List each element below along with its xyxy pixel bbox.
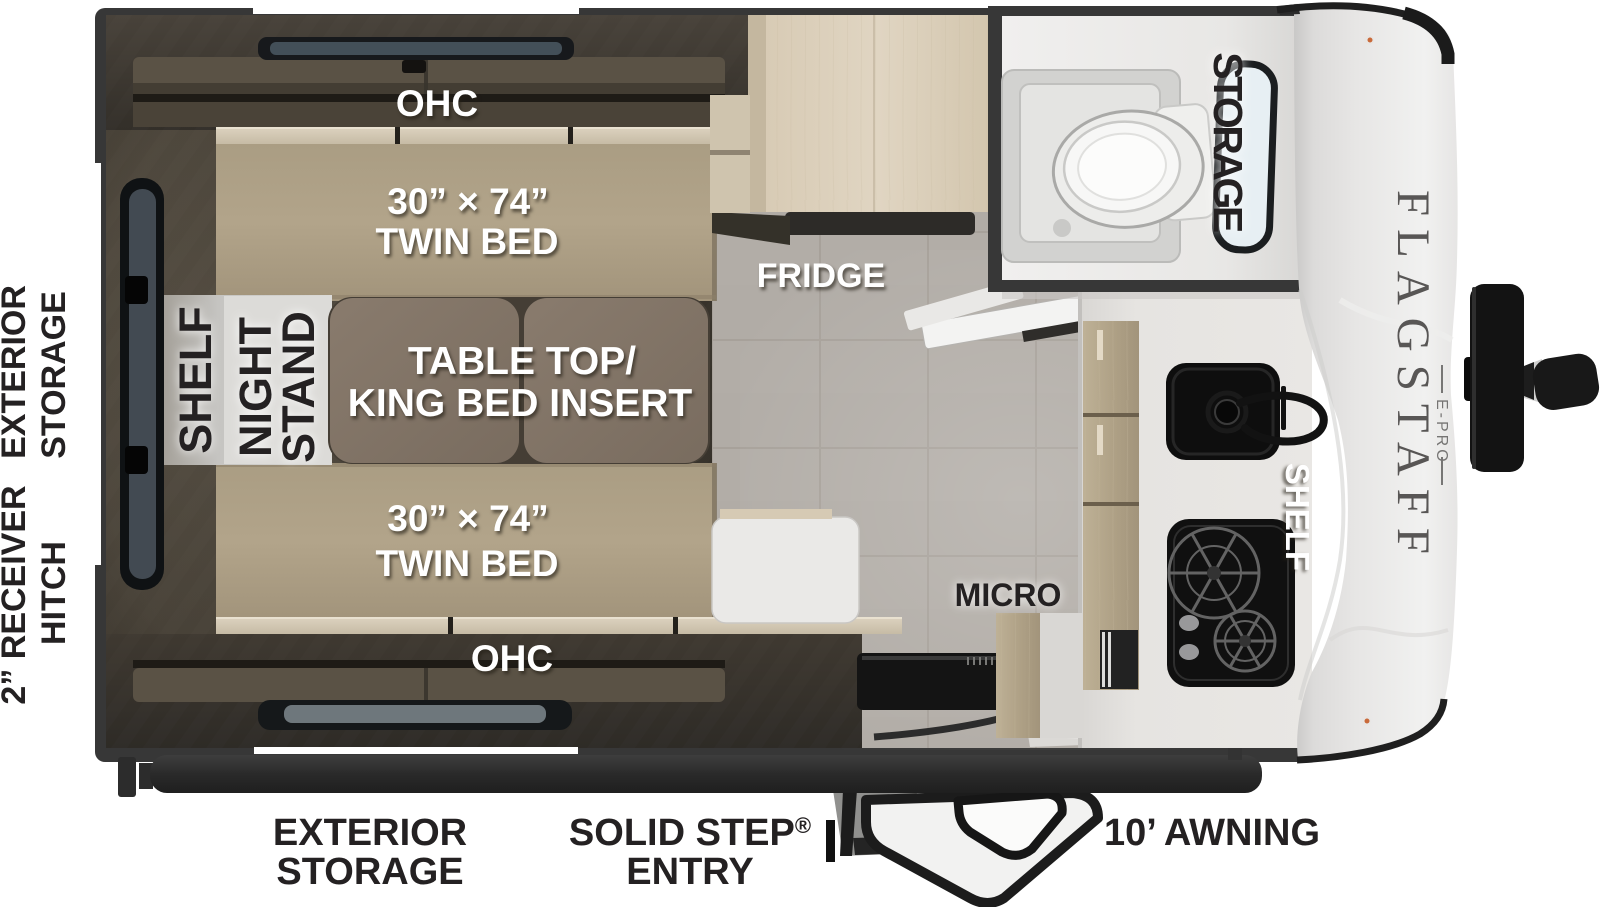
svg-text:30” × 74”: 30” × 74” bbox=[387, 181, 548, 222]
svg-text:STAND: STAND bbox=[273, 311, 324, 463]
svg-text:KING BED INSERT: KING BED INSERT bbox=[348, 382, 693, 425]
svg-text:SHELF: SHELF bbox=[1279, 463, 1316, 571]
svg-text:OHC: OHC bbox=[471, 638, 553, 679]
svg-text:STORAGE: STORAGE bbox=[276, 851, 463, 893]
svg-text:2” RECEIVER: 2” RECEIVER bbox=[0, 485, 33, 704]
svg-text:FRIDGE: FRIDGE bbox=[757, 257, 885, 295]
svg-text:EXTERIOR: EXTERIOR bbox=[273, 812, 467, 854]
svg-text:MICRO: MICRO bbox=[955, 577, 1062, 613]
svg-text:ENTRY: ENTRY bbox=[626, 851, 753, 893]
svg-text:EXTERIOR: EXTERIOR bbox=[0, 285, 33, 459]
svg-text:SOLID STEP®: SOLID STEP® bbox=[569, 812, 811, 854]
svg-text:TWIN BED: TWIN BED bbox=[376, 221, 559, 262]
svg-text:STORAGE: STORAGE bbox=[1205, 52, 1251, 232]
svg-text:OHC: OHC bbox=[396, 83, 478, 124]
svg-text:TWIN BED: TWIN BED bbox=[376, 543, 559, 584]
svg-text:STORAGE: STORAGE bbox=[35, 291, 73, 459]
svg-text:HITCH: HITCH bbox=[35, 541, 73, 645]
svg-text:TABLE TOP/: TABLE TOP/ bbox=[408, 340, 636, 383]
svg-text:30” × 74”: 30” × 74” bbox=[387, 498, 548, 539]
svg-text:10’ AWNING: 10’ AWNING bbox=[1104, 812, 1320, 854]
svg-text:E-PRO: E-PRO bbox=[1433, 399, 1450, 465]
svg-text:FLAGSTAFF: FLAGSTAFF bbox=[1387, 190, 1439, 567]
svg-text:SHELF: SHELF bbox=[170, 306, 221, 454]
